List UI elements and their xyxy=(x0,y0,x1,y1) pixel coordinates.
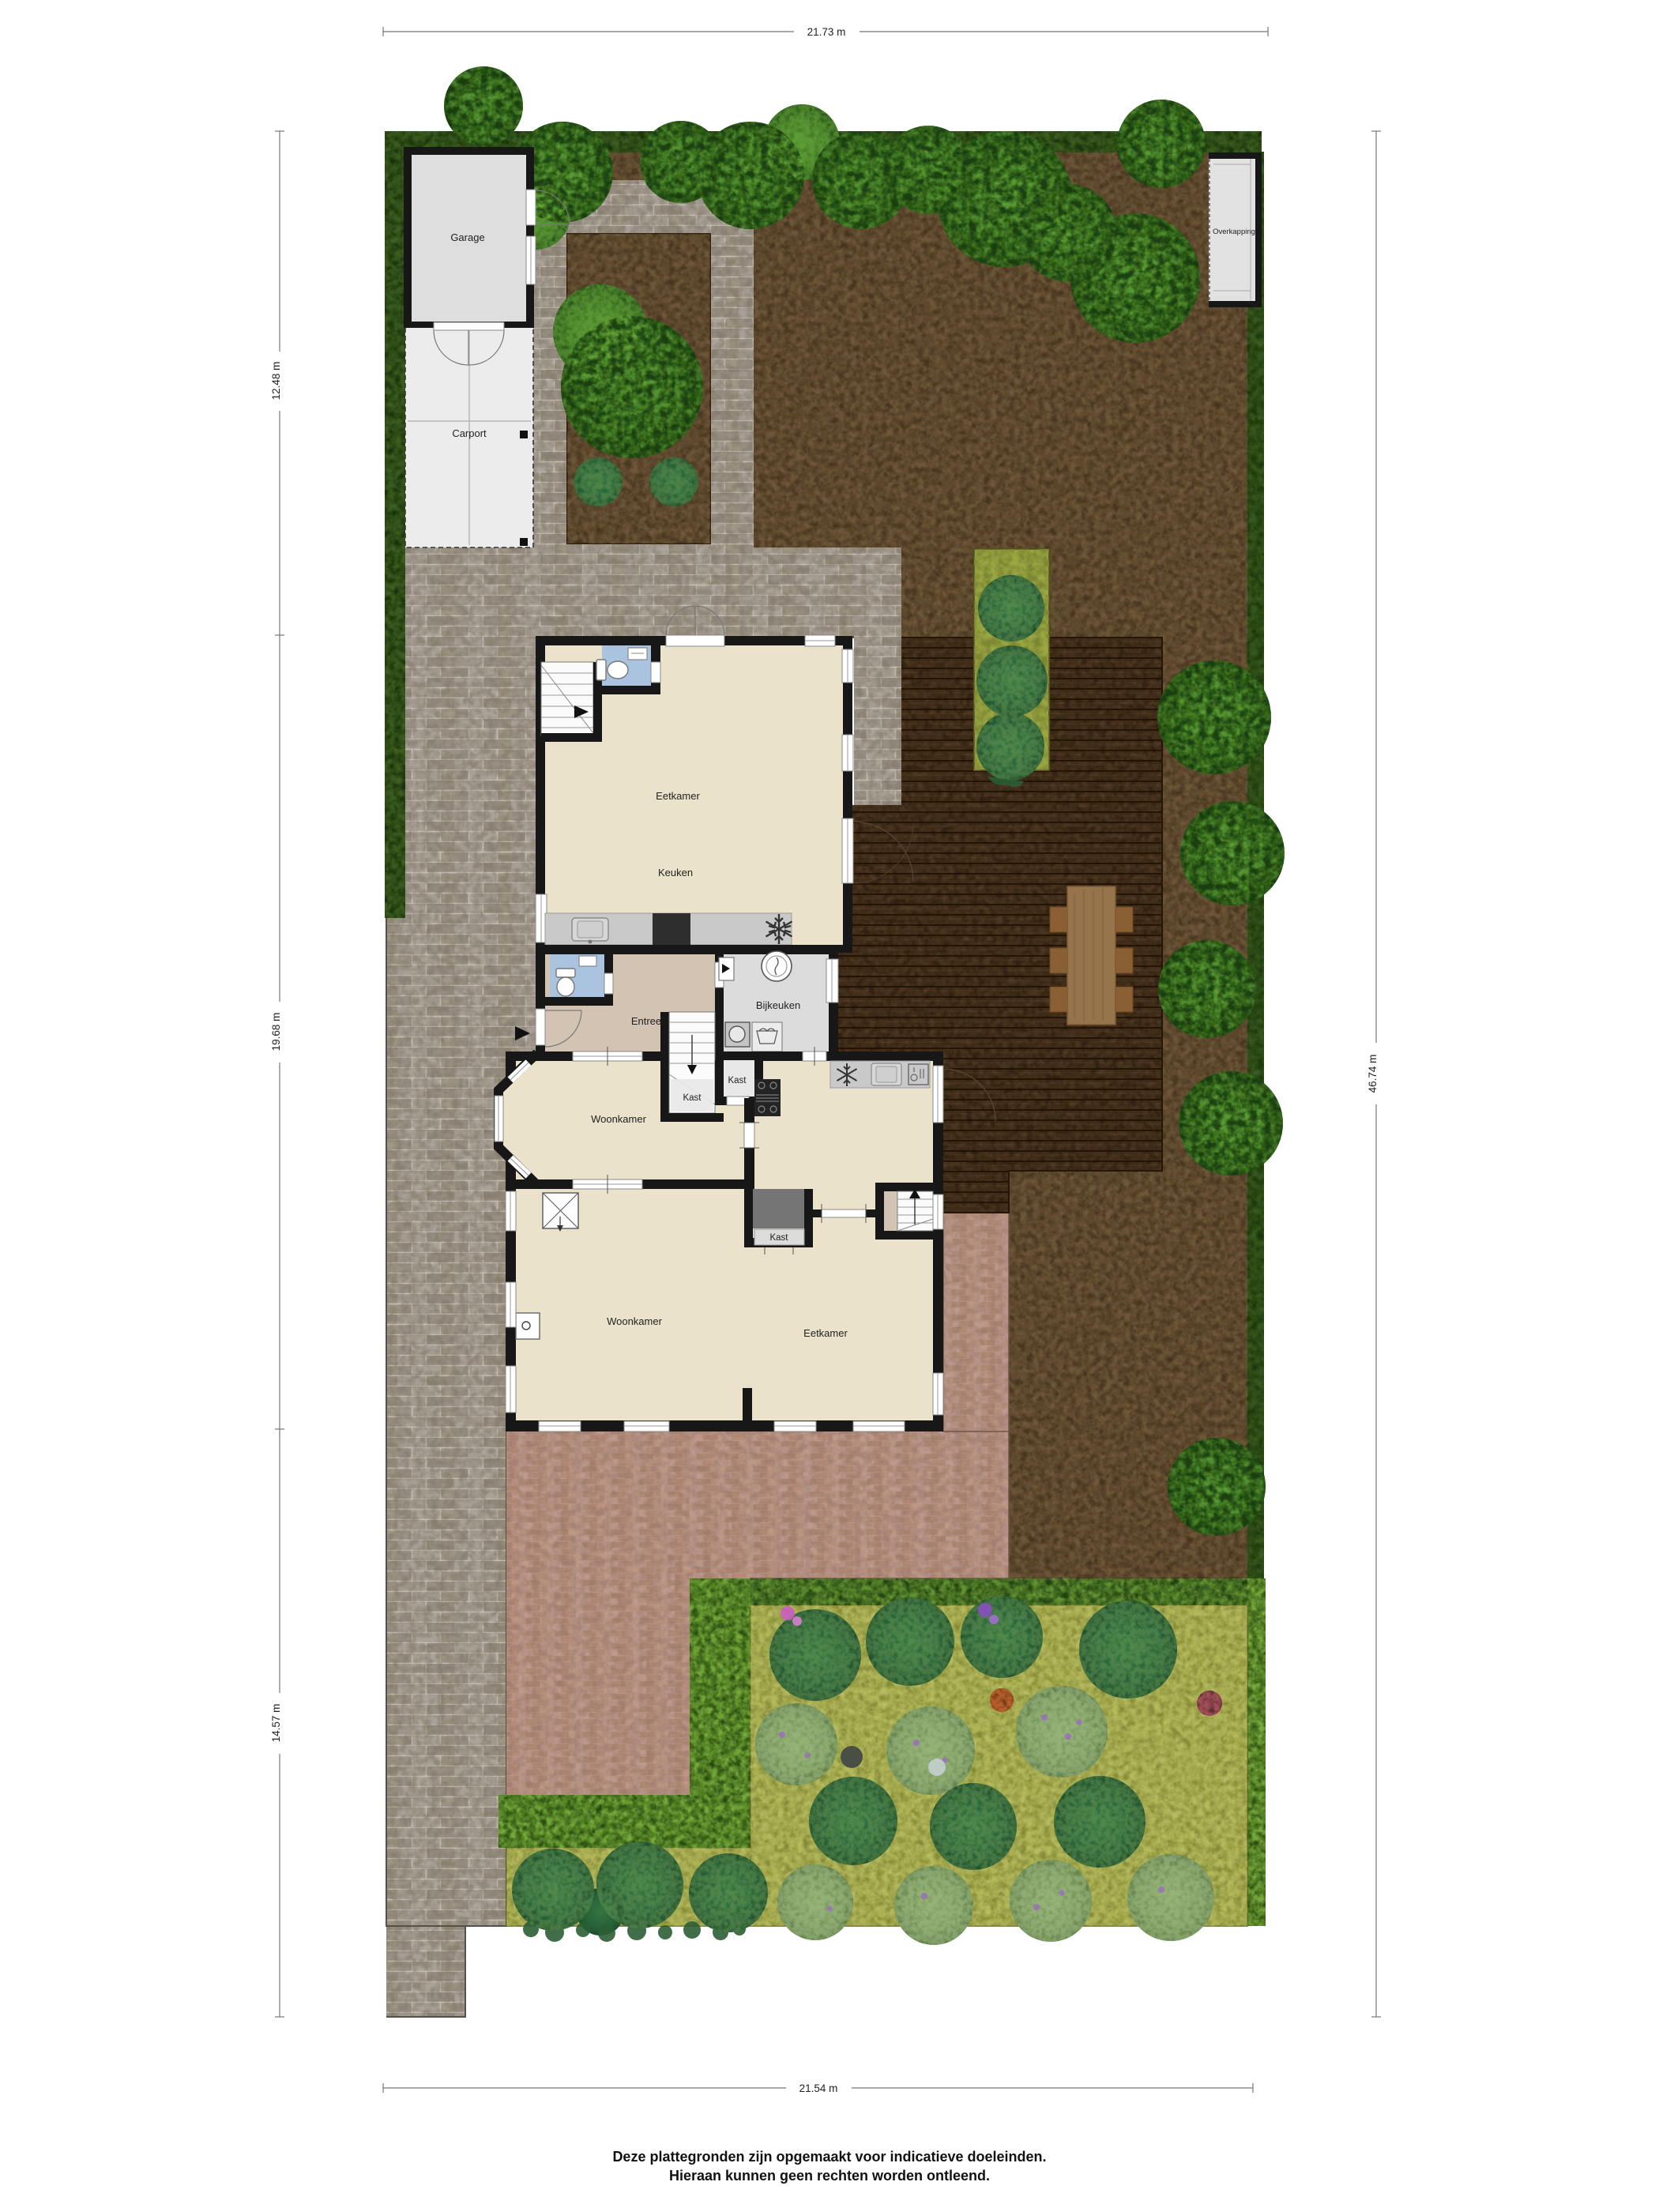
svg-text:19.68 m: 19.68 m xyxy=(270,1013,282,1051)
svg-text:46.74 m: 46.74 m xyxy=(1367,1055,1379,1093)
svg-text:21.54 m: 21.54 m xyxy=(799,2082,838,2094)
svg-text:14.57 m: 14.57 m xyxy=(270,1704,282,1743)
svg-text:Hieraan kunnen geen rechten wo: Hieraan kunnen geen rechten worden ontle… xyxy=(669,2168,990,2184)
svg-text:Kast: Kast xyxy=(769,1233,788,1243)
svg-text:Woonkamer: Woonkamer xyxy=(607,1315,663,1327)
svg-text:12.48 m: 12.48 m xyxy=(270,362,282,401)
svg-text:Eetkamer: Eetkamer xyxy=(803,1327,848,1339)
svg-text:Garage: Garage xyxy=(450,231,484,243)
svg-text:Entree: Entree xyxy=(631,1015,661,1027)
svg-text:Eetkamer: Eetkamer xyxy=(656,790,700,802)
svg-text:Carport: Carport xyxy=(452,427,487,439)
svg-text:Kast: Kast xyxy=(683,1093,702,1103)
svg-text:Woonkamer: Woonkamer xyxy=(591,1113,647,1125)
svg-text:Kast: Kast xyxy=(728,1076,747,1085)
svg-text:Overkapping: Overkapping xyxy=(1213,228,1255,236)
svg-text:21.73 m: 21.73 m xyxy=(807,26,846,38)
svg-text:Keuken: Keuken xyxy=(658,867,693,878)
svg-text:Deze plattegronden zijn opgema: Deze plattegronden zijn opgemaakt voor i… xyxy=(612,2149,1046,2165)
svg-text:Bijkeuken: Bijkeuken xyxy=(756,999,800,1011)
